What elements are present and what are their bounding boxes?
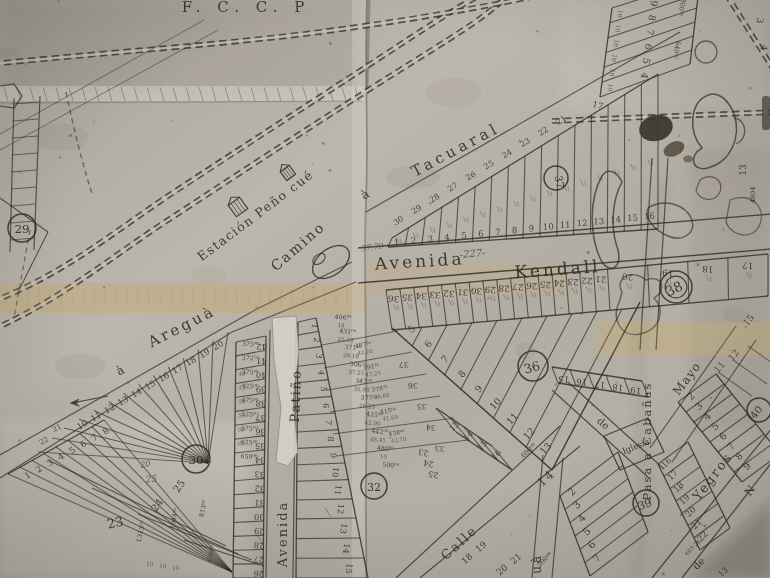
map-photo: 1234567891011121314151630292827262524232… [0,0,770,578]
vignette [0,0,770,578]
map-svg: 1234567891011121314151630292827262524232… [0,0,770,578]
stains-vignette-layer [0,0,770,578]
